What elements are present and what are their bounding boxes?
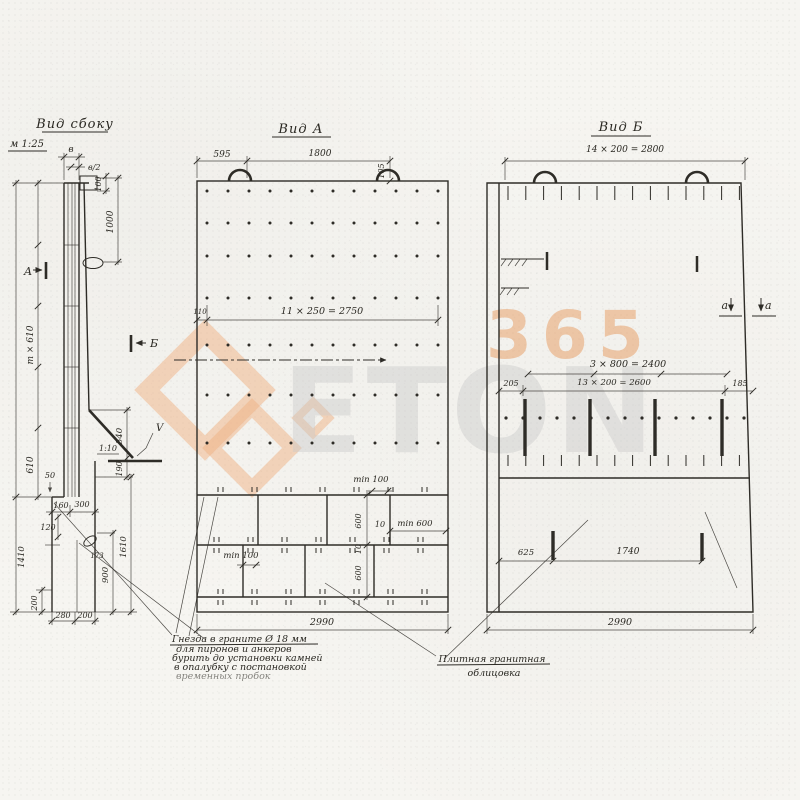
- side-view-title: Вид сбоку: [35, 117, 114, 132]
- dim-2990-b: 2990: [607, 617, 632, 628]
- dim-100: 100: [94, 176, 103, 191]
- notes: Гнезда в граните Ø 18 мм для пиронов и а…: [170, 634, 550, 682]
- dim-13x200: 13 × 200 = 2600: [577, 378, 651, 388]
- dim-185: 185: [732, 379, 747, 388]
- watermark-diamond-large: [147, 332, 263, 448]
- dim-min600: min 600: [397, 519, 433, 529]
- section-b-label: Б: [149, 337, 158, 350]
- dim-1610: 1610: [119, 536, 129, 558]
- dim-610: 610: [26, 456, 36, 473]
- dim-173: 173: [90, 552, 104, 560]
- rebar-ticks-top: [508, 186, 739, 200]
- dim-min100-left: min 100: [223, 551, 259, 561]
- lifting-loop-b2: [686, 172, 708, 183]
- dim-600-2: 600: [354, 565, 363, 580]
- note-sockets: Гнезда в граните Ø 18 мм для пиронов и а…: [170, 634, 323, 682]
- dim-625: 625: [518, 548, 534, 558]
- lifting-loop-a1: [229, 170, 251, 181]
- slope-label: 1:10: [99, 444, 117, 453]
- lower-anchors-b: 625 1740: [499, 531, 702, 561]
- dim-1800: 1800: [309, 149, 332, 159]
- dim-110: 110: [193, 308, 207, 316]
- note2-line2: облицовка: [468, 668, 521, 679]
- watermark: 365 ETON: [147, 297, 658, 488]
- view-b-top-dim: 14 × 200 = 2800: [505, 145, 745, 180]
- dim-b2: в/2: [88, 163, 100, 172]
- stray-leader-b: [705, 512, 737, 588]
- view-a-mid-dim: 110 11 × 250 = 2750: [193, 305, 438, 326]
- note-cladding: Плитная гранитная облицовка: [437, 654, 550, 679]
- socket-dots-b: [504, 416, 745, 419]
- dim-50-group: 50: [45, 471, 55, 492]
- view-a-top-dim: 595 1800 105: [197, 149, 390, 179]
- note1-line5: временных пробок: [176, 671, 271, 682]
- footing-outline: [10, 461, 137, 612]
- view-b-title: Вид Б: [598, 120, 644, 135]
- section-mark-aa: a a: [719, 298, 776, 316]
- slope-mark: 1:10: [97, 444, 119, 454]
- dim-50: 50: [45, 471, 55, 480]
- dim-200b: 200: [76, 611, 92, 620]
- leader-note1-d: [189, 497, 218, 636]
- dim-11x250: 11 × 250 = 2750: [281, 306, 363, 317]
- dim-1410: 1410: [17, 546, 27, 568]
- dim-300: 300: [74, 500, 89, 509]
- dim-105: 105: [377, 163, 386, 178]
- leader-note2-b: [444, 520, 588, 659]
- wall-profile: [80, 176, 162, 548]
- dim-b: в: [68, 145, 73, 155]
- dim-595: 595: [213, 150, 230, 160]
- dim-200a: 200: [30, 595, 39, 611]
- section-mark-a: А: [23, 262, 46, 279]
- section-a-label: А: [23, 265, 32, 278]
- view-b-bottom-dim: 2990: [487, 614, 753, 634]
- leader-note2-a: [325, 583, 436, 656]
- dim-1000: 1000: [106, 210, 116, 233]
- dim-540: 540: [115, 427, 125, 444]
- weld-mark-v: V: [137, 423, 165, 456]
- slab-zone-a: [197, 495, 448, 597]
- dim-1740: 1740: [617, 547, 640, 557]
- lifting-loop-b1: [534, 172, 556, 183]
- dim-280: 280: [54, 611, 70, 620]
- side-view-scale: м 1:25: [10, 139, 44, 150]
- dim-190: 190: [115, 461, 124, 476]
- blueprint-canvas: 365 ETON Вид сбоку м 1:25: [0, 0, 800, 800]
- section-a2-label: a: [765, 299, 772, 312]
- section-a1-label: a: [721, 299, 728, 312]
- note2-line1: Плитная гранитная: [438, 654, 546, 665]
- v-mark-label: V: [156, 423, 165, 434]
- side-view: Вид сбоку м 1:25: [8, 117, 206, 640]
- dim-205: 205: [502, 379, 518, 388]
- view-a-bottom-dim: 2990: [197, 614, 448, 634]
- dim-min100-right: min 100: [353, 475, 389, 485]
- dim-14x200: 14 × 200 = 2800: [586, 145, 664, 155]
- dim-mx610: m × 610: [26, 325, 36, 364]
- section-mark-b: Б: [131, 335, 158, 352]
- dim-3x800: 3 × 800 = 2400: [590, 359, 666, 370]
- slab-dims-a: min 100 600 10 600 10 min 600 min 100: [223, 475, 448, 600]
- dim-160: 160: [53, 501, 68, 510]
- drawing-svg: 365 ETON Вид сбоку м 1:25: [0, 0, 800, 800]
- dim-600-1: 600: [354, 513, 363, 528]
- view-a-title: Вид А: [277, 122, 323, 137]
- dim-900: 900: [101, 566, 111, 583]
- dim-10-rot: 10: [354, 544, 363, 554]
- dim-120: 120: [40, 523, 55, 532]
- dim-2990-a: 2990: [309, 617, 334, 628]
- level-marks: [500, 252, 697, 295]
- dim-10-h: 10: [375, 520, 385, 529]
